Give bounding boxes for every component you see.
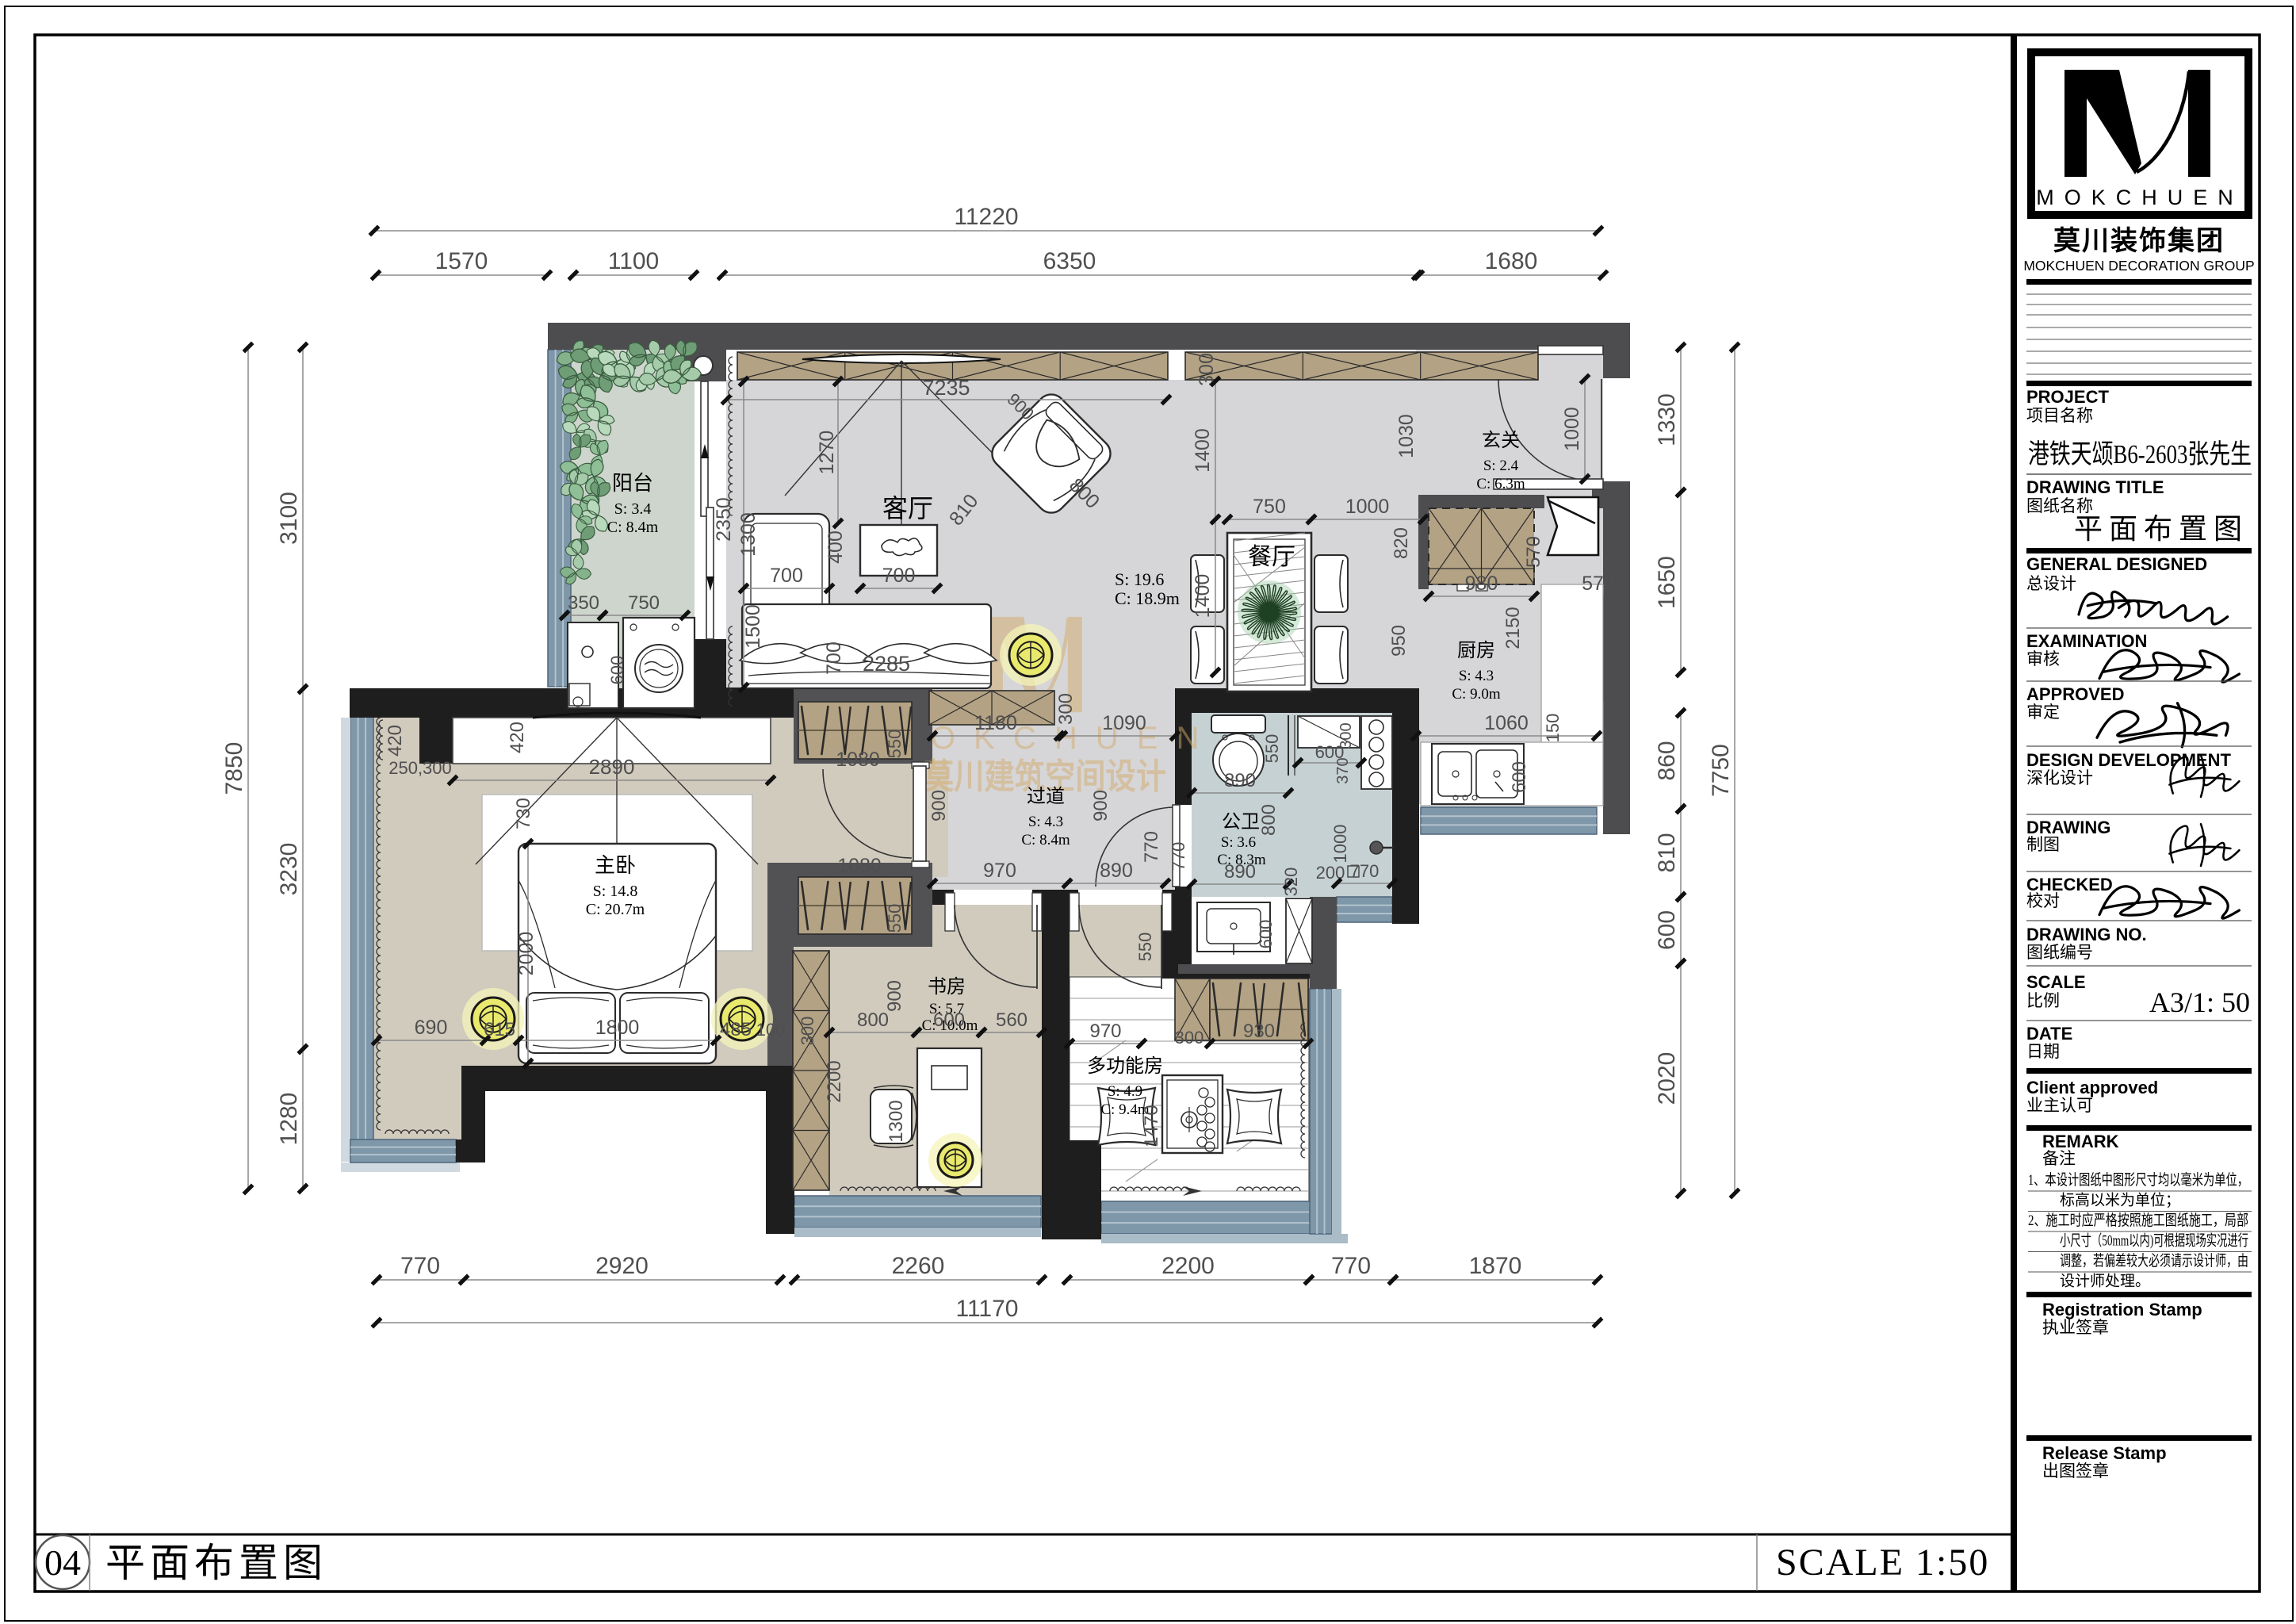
svg-text:PROJECT: PROJECT bbox=[2026, 387, 2109, 407]
svg-text:890: 890 bbox=[1100, 860, 1133, 882]
svg-text:1400: 1400 bbox=[1192, 574, 1214, 619]
svg-text:770: 770 bbox=[1169, 842, 1188, 871]
svg-text:1800: 1800 bbox=[595, 1017, 640, 1039]
svg-text:过道: 过道 bbox=[1027, 786, 1065, 807]
svg-text:350: 350 bbox=[568, 592, 599, 614]
svg-text:玄关: 玄关 bbox=[1482, 430, 1520, 451]
svg-text:S: 2.4: S: 2.4 bbox=[1483, 458, 1519, 474]
svg-text:150: 150 bbox=[1543, 714, 1563, 743]
svg-text:多功能房: 多功能房 bbox=[1087, 1055, 1163, 1077]
svg-text:1570: 1570 bbox=[435, 248, 488, 274]
svg-text:550: 550 bbox=[1135, 933, 1155, 962]
svg-text:7750: 7750 bbox=[1708, 744, 1734, 797]
svg-text:日期: 日期 bbox=[2026, 1043, 2060, 1061]
svg-text:300: 300 bbox=[1175, 1028, 1204, 1048]
svg-text:2350: 2350 bbox=[713, 497, 735, 542]
svg-text:1270: 1270 bbox=[816, 431, 838, 475]
svg-text:SCALE 1:50: SCALE 1:50 bbox=[1776, 1542, 1989, 1584]
svg-text:900: 900 bbox=[884, 980, 905, 1012]
svg-text:420: 420 bbox=[385, 725, 406, 756]
svg-text:平面布置图: 平面布置图 bbox=[105, 1541, 327, 1585]
svg-text:S: 4.3: S: 4.3 bbox=[1459, 668, 1494, 684]
svg-text:860: 860 bbox=[1654, 741, 1680, 780]
svg-text:2200: 2200 bbox=[824, 1060, 845, 1102]
svg-text:300: 300 bbox=[1337, 722, 1355, 749]
svg-text:730: 730 bbox=[513, 798, 534, 829]
svg-text:2150: 2150 bbox=[1502, 607, 1524, 649]
svg-text:C: 9.0m: C: 9.0m bbox=[1452, 686, 1500, 703]
svg-text:1470: 1470 bbox=[1141, 1105, 1162, 1147]
svg-text:书房: 书房 bbox=[928, 976, 966, 998]
svg-text:审定: 审定 bbox=[2026, 703, 2060, 722]
svg-text:900: 900 bbox=[928, 790, 950, 822]
svg-text:7235: 7235 bbox=[922, 376, 970, 400]
svg-text:100: 100 bbox=[756, 1020, 786, 1040]
svg-text:A3/1: 50: A3/1: 50 bbox=[2149, 986, 2250, 1018]
svg-text:MOKCHUEN DECORATION GROUP: MOKCHUEN DECORATION GROUP bbox=[2023, 258, 2254, 274]
svg-text:S: 19.6: S: 19.6 bbox=[1115, 569, 1164, 589]
svg-text:C: 8.4m: C: 8.4m bbox=[1021, 832, 1070, 848]
svg-text:S: 14.8: S: 14.8 bbox=[593, 883, 638, 900]
svg-text:1300: 1300 bbox=[886, 1100, 907, 1142]
svg-text:600: 600 bbox=[933, 1009, 965, 1031]
svg-text:615: 615 bbox=[484, 1019, 515, 1040]
svg-text:主卧: 主卧 bbox=[595, 854, 636, 877]
svg-text:890: 890 bbox=[1224, 861, 1256, 883]
svg-text:11220: 11220 bbox=[954, 204, 1018, 230]
svg-text:DESIGN DEVELOPMENT: DESIGN DEVELOPMENT bbox=[2026, 750, 2231, 770]
svg-text:DATE: DATE bbox=[2026, 1024, 2072, 1044]
svg-text:公卫: 公卫 bbox=[1222, 812, 1260, 833]
svg-text:2260: 2260 bbox=[892, 1253, 945, 1279]
svg-text:厨房: 厨房 bbox=[1457, 640, 1495, 661]
svg-text:300: 300 bbox=[798, 1017, 817, 1046]
svg-text:2000: 2000 bbox=[515, 932, 538, 976]
svg-text:1680: 1680 bbox=[1485, 248, 1538, 274]
svg-text:标高以米为单位；: 标高以米为单位； bbox=[2060, 1192, 2180, 1209]
svg-text:690: 690 bbox=[415, 1017, 448, 1039]
svg-text:制图: 制图 bbox=[2026, 836, 2060, 854]
svg-text:2020: 2020 bbox=[1654, 1052, 1680, 1105]
svg-text:820: 820 bbox=[1391, 527, 1412, 559]
svg-text:餐厅: 餐厅 bbox=[1248, 544, 1295, 570]
svg-text:C: 6.3m: C: 6.3m bbox=[1476, 476, 1525, 492]
svg-text:项目名称: 项目名称 bbox=[2026, 407, 2093, 425]
svg-text:300: 300 bbox=[1055, 693, 1077, 725]
svg-text:1080: 1080 bbox=[837, 855, 882, 877]
svg-text:250,300: 250,300 bbox=[388, 758, 452, 778]
svg-text:550: 550 bbox=[885, 730, 905, 759]
svg-text:1000: 1000 bbox=[1561, 407, 1583, 451]
svg-text:370: 370 bbox=[1334, 757, 1352, 783]
svg-text:港铁天颂B6-2603张先生: 港铁天颂B6-2603张先生 bbox=[2028, 439, 2252, 469]
svg-text:总设计: 总设计 bbox=[2026, 575, 2076, 593]
svg-text:1、本设计图纸中图形尺寸均以毫米为单位，: 1、本设计图纸中图形尺寸均以毫米为单位， bbox=[2028, 1171, 2248, 1189]
svg-text:970: 970 bbox=[1089, 1021, 1121, 1042]
svg-text:750: 750 bbox=[628, 592, 660, 614]
svg-text:770: 770 bbox=[1350, 861, 1380, 881]
svg-text:比例: 比例 bbox=[2026, 992, 2060, 1010]
svg-text:700: 700 bbox=[882, 565, 916, 587]
svg-text:EXAMINATION: EXAMINATION bbox=[2026, 631, 2147, 651]
svg-text:校对: 校对 bbox=[2026, 892, 2060, 910]
svg-text:1080: 1080 bbox=[836, 749, 880, 771]
svg-text:S: 4.9: S: 4.9 bbox=[1108, 1083, 1142, 1100]
svg-text:DRAWING TITLE: DRAWING TITLE bbox=[2026, 477, 2164, 497]
svg-text:1180: 1180 bbox=[974, 712, 1017, 734]
svg-text:3230: 3230 bbox=[276, 843, 302, 896]
svg-text:DRAWING: DRAWING bbox=[2026, 818, 2110, 837]
svg-text:600: 600 bbox=[1256, 920, 1276, 949]
svg-text:1100: 1100 bbox=[608, 248, 660, 274]
svg-text:GENERAL DESIGNED: GENERAL DESIGNED bbox=[2026, 554, 2207, 574]
svg-text:SCALE: SCALE bbox=[2026, 972, 2086, 992]
svg-text:MOKCHUEN: MOKCHUEN bbox=[2036, 186, 2244, 209]
svg-text:1000: 1000 bbox=[1345, 496, 1390, 518]
svg-text:1280: 1280 bbox=[276, 1093, 302, 1146]
svg-text:审核: 审核 bbox=[2026, 650, 2060, 668]
svg-text:770: 770 bbox=[1141, 831, 1162, 863]
svg-text:700: 700 bbox=[823, 642, 845, 675]
svg-text:C: 18.9m: C: 18.9m bbox=[1115, 588, 1180, 608]
svg-text:485: 485 bbox=[720, 1019, 752, 1040]
svg-text:550: 550 bbox=[885, 904, 905, 933]
svg-text:Client approved: Client approved bbox=[2026, 1078, 2158, 1097]
svg-text:出图签章: 出图签章 bbox=[2042, 1462, 2109, 1480]
svg-text:600: 600 bbox=[1654, 910, 1680, 950]
svg-text:1650: 1650 bbox=[1654, 556, 1680, 609]
svg-text:2920: 2920 bbox=[595, 1253, 649, 1279]
svg-text:04: 04 bbox=[44, 1542, 81, 1583]
svg-text:客厅: 客厅 bbox=[882, 494, 933, 523]
svg-text:6350: 6350 bbox=[1043, 248, 1096, 274]
svg-text:M O K C H U E N: M O K C H U E N bbox=[886, 721, 1203, 756]
svg-text:APPROVED: APPROVED bbox=[2026, 684, 2124, 704]
svg-text:1400: 1400 bbox=[1192, 428, 1214, 473]
svg-text:560: 560 bbox=[996, 1009, 1027, 1031]
svg-text:备注: 备注 bbox=[2042, 1150, 2076, 1168]
svg-text:420: 420 bbox=[507, 722, 528, 753]
svg-text:800: 800 bbox=[857, 1009, 889, 1031]
svg-text:1060: 1060 bbox=[1484, 712, 1529, 734]
svg-text:2、施工时应严格按照施工图纸施工，局部: 2、施工时应严格按照施工图纸施工，局部 bbox=[2028, 1212, 2248, 1229]
svg-text:莫川装饰集团: 莫川装饰集团 bbox=[2053, 226, 2225, 256]
svg-text:570: 570 bbox=[1582, 573, 1615, 595]
svg-text:11170: 11170 bbox=[956, 1296, 1019, 1322]
svg-text:800: 800 bbox=[1258, 804, 1280, 836]
svg-text:700: 700 bbox=[770, 565, 803, 587]
svg-text:770: 770 bbox=[400, 1253, 440, 1279]
svg-text:1030: 1030 bbox=[1395, 414, 1418, 458]
svg-text:900: 900 bbox=[1090, 790, 1112, 822]
svg-text:阳台: 阳台 bbox=[612, 472, 653, 495]
svg-text:980: 980 bbox=[1465, 573, 1498, 595]
svg-text:320: 320 bbox=[1281, 868, 1301, 897]
svg-text:890: 890 bbox=[1224, 770, 1256, 791]
svg-text:1300: 1300 bbox=[737, 512, 760, 557]
svg-text:400: 400 bbox=[825, 530, 847, 564]
svg-text:570: 570 bbox=[1523, 536, 1544, 568]
svg-text:执业签章: 执业签章 bbox=[2042, 1319, 2109, 1337]
svg-text:Release Stamp: Release Stamp bbox=[2042, 1443, 2167, 1463]
svg-text:770: 770 bbox=[1331, 1253, 1371, 1279]
svg-text:C: 8.4m: C: 8.4m bbox=[607, 519, 659, 536]
svg-text:3100: 3100 bbox=[276, 492, 302, 545]
svg-text:S: 3.4: S: 3.4 bbox=[614, 500, 652, 518]
svg-text:750: 750 bbox=[1253, 496, 1286, 518]
svg-text:1500: 1500 bbox=[742, 604, 764, 649]
svg-text:C: 20.7m: C: 20.7m bbox=[586, 901, 645, 918]
svg-text:1870: 1870 bbox=[1469, 1253, 1522, 1279]
svg-text:2890: 2890 bbox=[589, 755, 635, 779]
svg-text:业主认可: 业主认可 bbox=[2026, 1097, 2093, 1115]
svg-text:2200: 2200 bbox=[1161, 1253, 1215, 1279]
svg-text:970: 970 bbox=[983, 860, 1016, 882]
svg-text:小尺寸（50mm以内)可根据现场实况进行: 小尺寸（50mm以内)可根据现场实况进行 bbox=[2060, 1232, 2248, 1250]
svg-text:Registration Stamp: Registration Stamp bbox=[2042, 1300, 2202, 1319]
svg-text:1000: 1000 bbox=[1330, 825, 1350, 864]
svg-text:DRAWING NO.: DRAWING NO. bbox=[2026, 925, 2147, 944]
svg-text:950: 950 bbox=[1388, 625, 1410, 657]
svg-text:深化设计: 深化设计 bbox=[2026, 769, 2093, 787]
svg-text:1090: 1090 bbox=[1102, 712, 1146, 734]
svg-text:设计师处理。: 设计师处理。 bbox=[2060, 1273, 2150, 1290]
svg-text:S: 4.3: S: 4.3 bbox=[1028, 814, 1063, 830]
svg-text:810: 810 bbox=[1654, 833, 1680, 872]
svg-text:平面布置图: 平面布置图 bbox=[2074, 513, 2248, 545]
svg-text:图纸编号: 图纸编号 bbox=[2026, 944, 2093, 962]
svg-text:1330: 1330 bbox=[1654, 393, 1680, 446]
svg-text:7850: 7850 bbox=[221, 742, 247, 795]
svg-text:930: 930 bbox=[1243, 1021, 1275, 1042]
svg-text:REMARK: REMARK bbox=[2042, 1132, 2119, 1151]
svg-text:600: 600 bbox=[1509, 761, 1530, 793]
svg-text:550: 550 bbox=[1262, 734, 1282, 764]
svg-text:600: 600 bbox=[607, 656, 627, 685]
svg-text:调整，若偏差较大必须请示设计师，由: 调整，若偏差较大必须请示设计师，由 bbox=[2060, 1252, 2248, 1270]
svg-text:2285: 2285 bbox=[863, 652, 910, 676]
svg-text:S: 3.6: S: 3.6 bbox=[1221, 834, 1256, 851]
